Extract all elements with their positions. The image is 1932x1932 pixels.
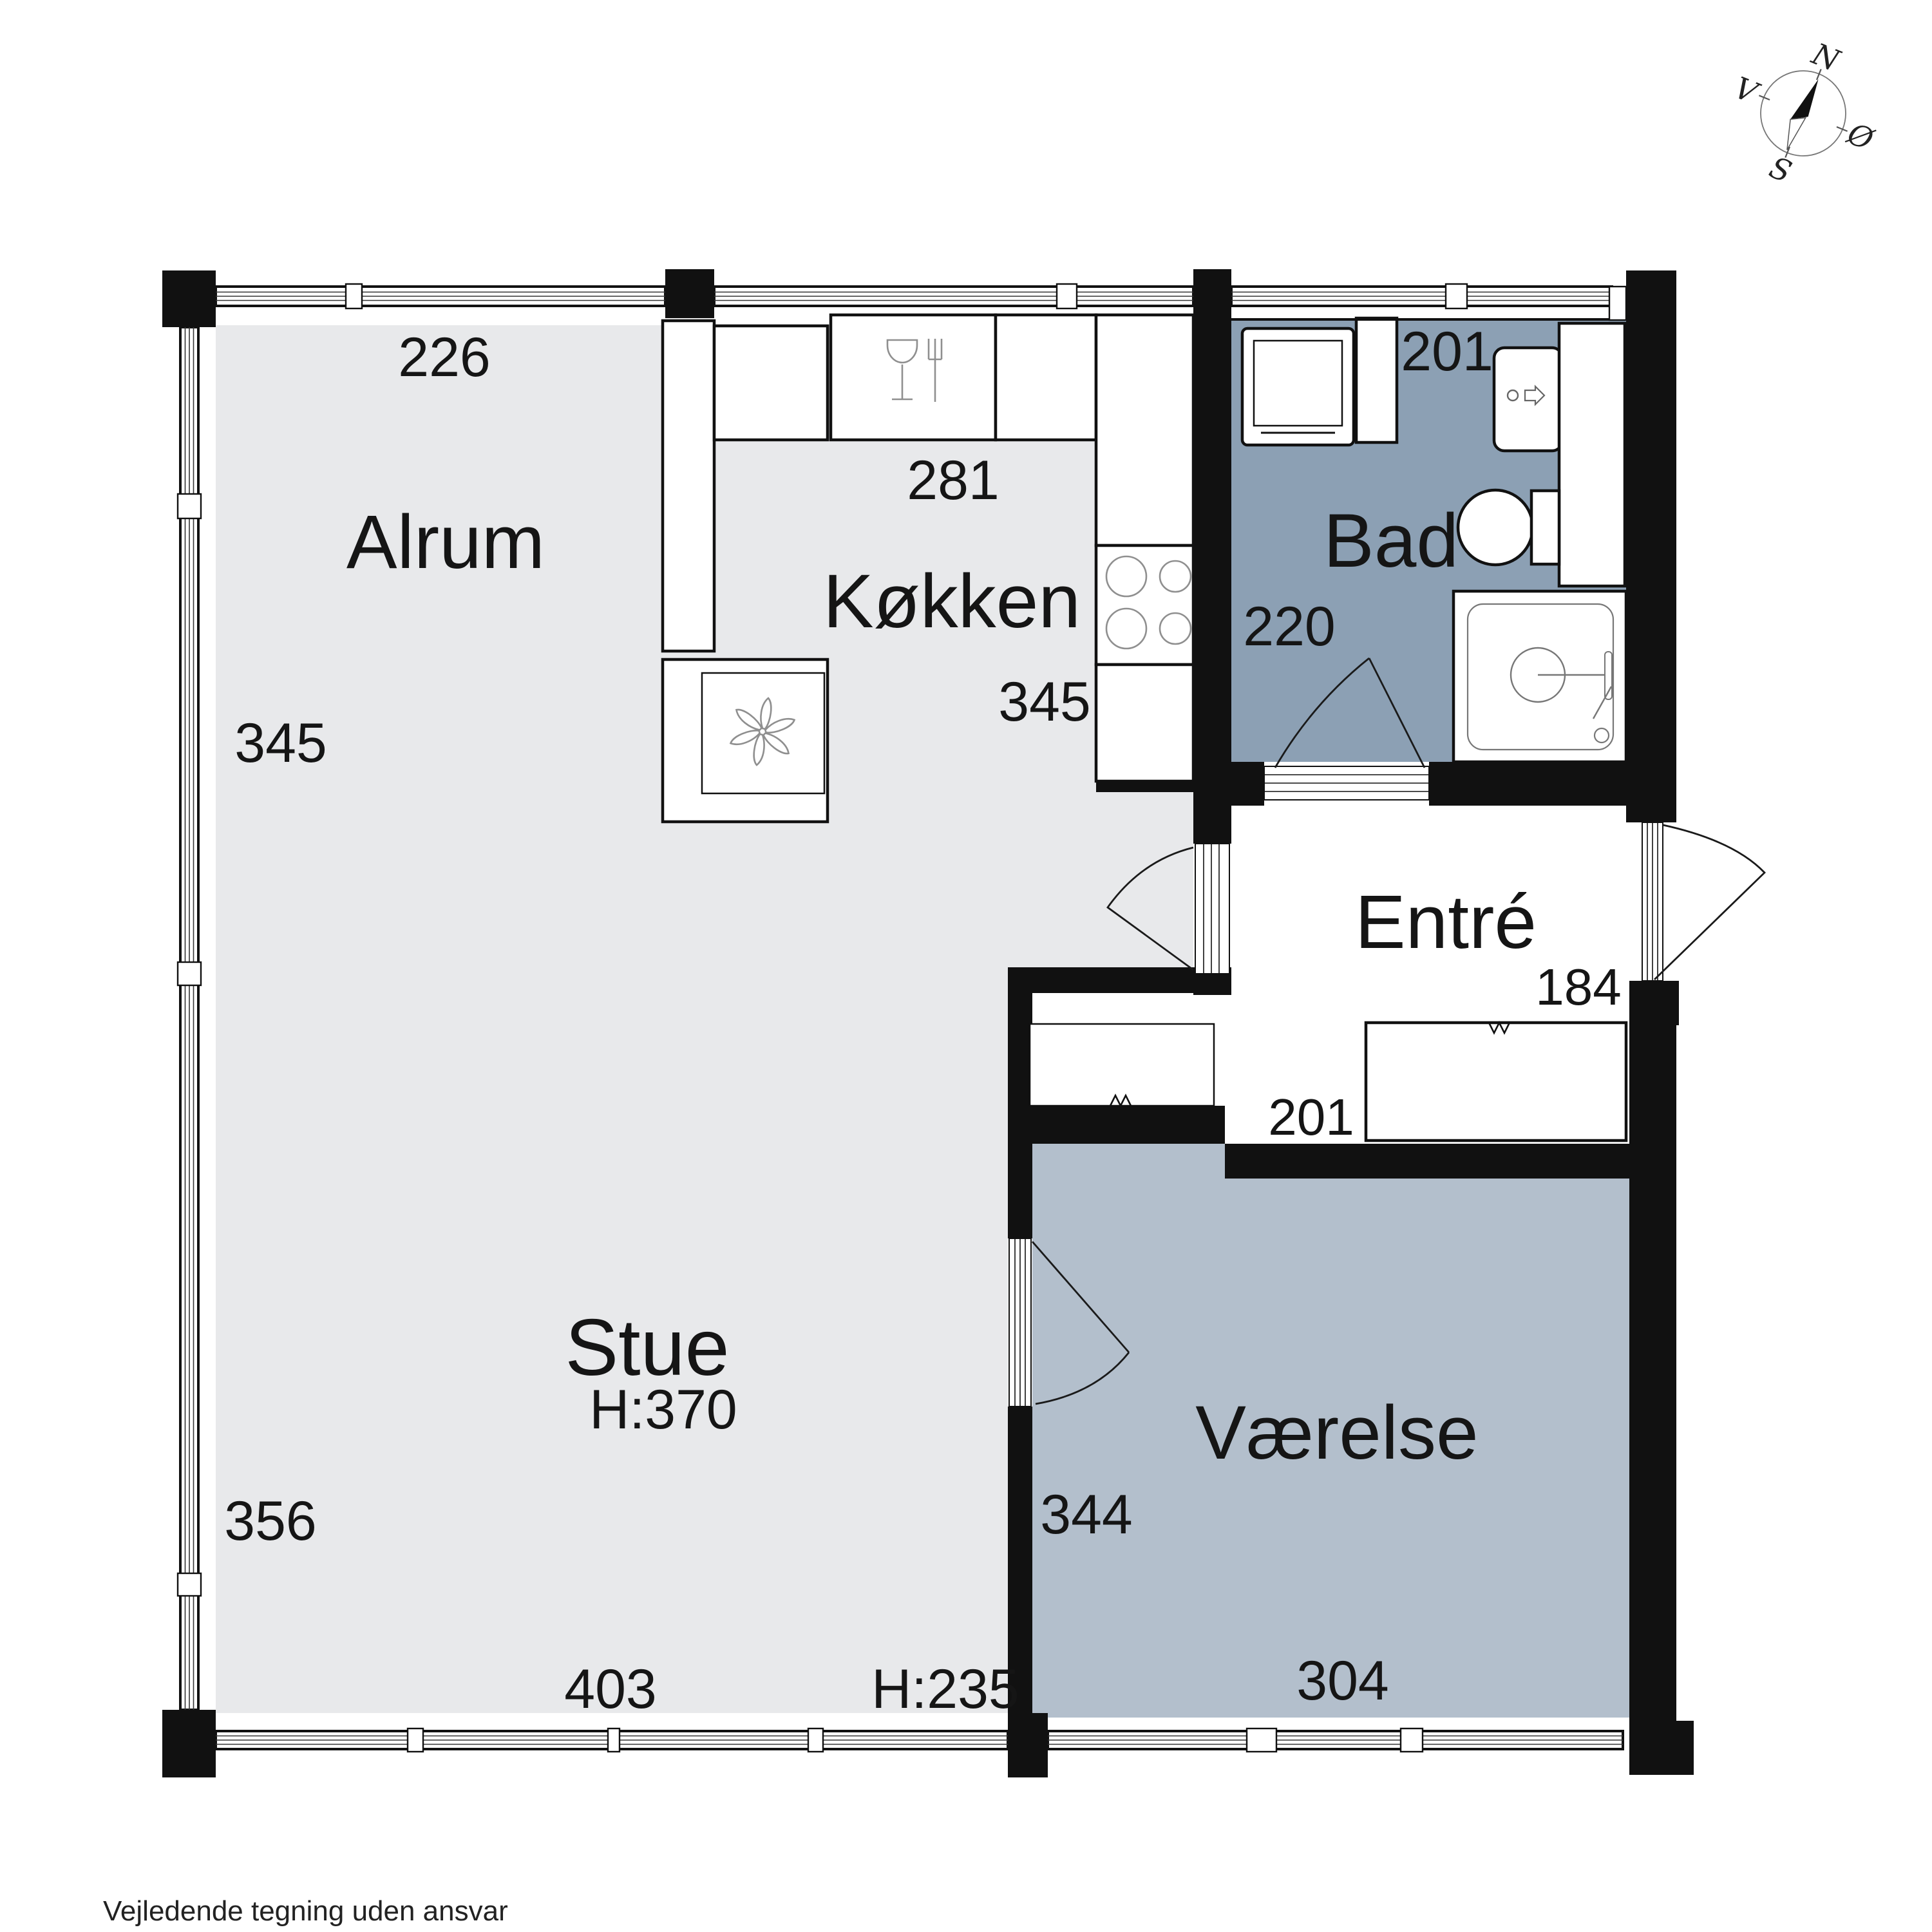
wall-closet-bottom bbox=[1010, 1106, 1225, 1144]
dim-entre-bottom: 201 bbox=[1268, 1088, 1354, 1146]
kitchen-counter-top-2 bbox=[996, 315, 1096, 440]
wall-entre-left-upper bbox=[1193, 806, 1231, 844]
entrance-door bbox=[1642, 822, 1765, 981]
wall-stue-vaerelse-upper bbox=[1008, 993, 1032, 1238]
sink-icon bbox=[1494, 348, 1562, 451]
bathroom-cabinet bbox=[1356, 318, 1397, 442]
dim-stue-bottom: 403 bbox=[564, 1658, 657, 1720]
kitchen-counter-end-cap bbox=[1096, 781, 1193, 792]
stue-closet bbox=[1030, 1024, 1214, 1106]
label-koekken: Køkken bbox=[823, 559, 1081, 644]
dim-entre-right: 184 bbox=[1535, 958, 1621, 1016]
kitchen-counter-corner-column bbox=[1096, 315, 1193, 545]
dim-koekken-below: 345 bbox=[998, 671, 1091, 733]
label-vaerelse: Værelse bbox=[1195, 1390, 1478, 1475]
floorplan-drawing: 226 Alrum 345 281 Køkken 345 201 Bad 220… bbox=[0, 0, 1932, 1932]
dim-bad-top: 201 bbox=[1401, 321, 1493, 383]
bathroom-vanity bbox=[1559, 323, 1625, 586]
kitchen-counter-left-column bbox=[663, 321, 714, 651]
wall-bad-bottom-right bbox=[1429, 762, 1676, 806]
dim-koekken-top: 281 bbox=[907, 450, 999, 511]
kitchen-dishwasher-cabinet bbox=[831, 315, 996, 440]
washing-machine-icon bbox=[1242, 328, 1354, 445]
wall-right-upper bbox=[1626, 270, 1676, 822]
shower-icon bbox=[1454, 591, 1626, 762]
wall-bad-bottom-left bbox=[1193, 762, 1264, 806]
wall-corner-bottom-right bbox=[1629, 1721, 1694, 1775]
disclaimer-text: Vejledende tegning uden ansvar bbox=[103, 1895, 508, 1927]
label-stue-ceiling-low: H:235 bbox=[871, 1658, 1019, 1720]
kitchen-fan-cabinet bbox=[702, 673, 824, 793]
dim-alrum-top: 226 bbox=[398, 327, 491, 388]
window-bottom-wall bbox=[216, 1728, 1623, 1752]
wall-vaerelse-top bbox=[1225, 1144, 1629, 1179]
floorplan-page: 226 Alrum 345 281 Køkken 345 201 Bad 220… bbox=[0, 0, 1932, 1932]
compass-south-label: S bbox=[1765, 149, 1796, 189]
wall-pillar-top bbox=[665, 269, 714, 318]
label-stue-ceiling: H:370 bbox=[589, 1379, 737, 1441]
dim-bad-left: 220 bbox=[1243, 596, 1336, 658]
wall-corner-bottom-left bbox=[162, 1710, 216, 1777]
label-bad: Bad bbox=[1323, 498, 1459, 583]
label-entre: Entré bbox=[1355, 880, 1537, 965]
dim-vaerelse-left: 344 bbox=[1040, 1484, 1133, 1546]
wall-right-entrance-block bbox=[1629, 981, 1679, 1025]
wall-right-lower bbox=[1629, 1025, 1676, 1721]
wall-stue-vaerelse-bottom-block bbox=[1008, 1713, 1048, 1777]
kitchen-counter-below-stove bbox=[1096, 665, 1193, 781]
entre-wardrobe bbox=[1366, 1023, 1626, 1141]
wall-koekken-bad bbox=[1193, 269, 1231, 786]
window-left-wall bbox=[178, 327, 201, 1710]
compass-needle bbox=[1779, 75, 1823, 153]
dim-stue-left: 356 bbox=[224, 1490, 317, 1552]
label-alrum: Alrum bbox=[346, 500, 545, 585]
compass-west-label: V bbox=[1729, 70, 1765, 111]
dim-alrum-left: 345 bbox=[234, 712, 327, 774]
toilet-icon bbox=[1458, 490, 1559, 565]
wall-corner-top-left bbox=[162, 270, 216, 327]
dim-vaerelse-bottom: 304 bbox=[1296, 1650, 1389, 1712]
compass-rose: N Ø S V bbox=[1707, 14, 1902, 214]
compass-east-label: Ø bbox=[1842, 115, 1879, 157]
kitchen-counter-top-1 bbox=[714, 326, 828, 440]
